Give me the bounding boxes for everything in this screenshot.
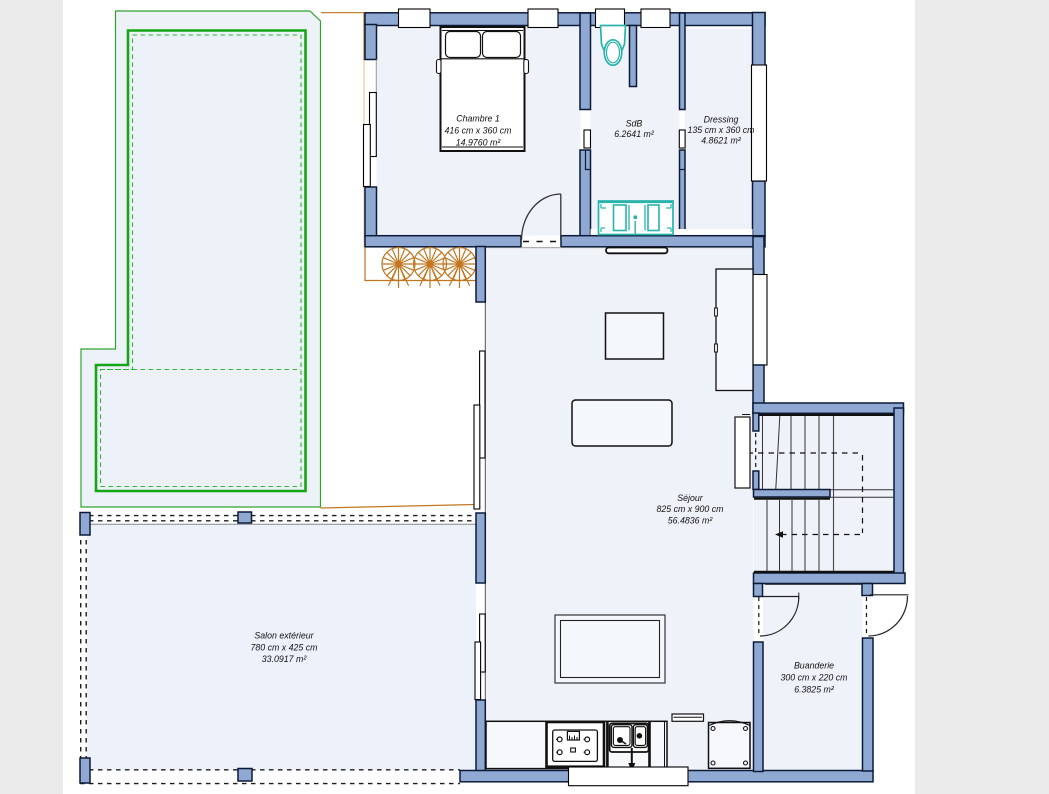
svg-text:825 cm x 900 cm: 825 cm x 900 cm (657, 504, 724, 514)
svg-text:33.0917 m²: 33.0917 m² (262, 654, 308, 664)
svg-text:Chambre 1: Chambre 1 (456, 113, 500, 123)
svg-text:Séjour: Séjour (677, 493, 703, 503)
svg-text:Buanderie: Buanderie (794, 661, 834, 671)
svg-text:Salon extérieur: Salon extérieur (254, 631, 314, 641)
svg-text:135 cm x 360 cm: 135 cm x 360 cm (688, 125, 755, 135)
svg-text:56.4836 m²: 56.4836 m² (668, 516, 714, 526)
svg-text:14.9760 m²: 14.9760 m² (456, 138, 502, 148)
svg-text:6.2641 m²: 6.2641 m² (614, 129, 655, 139)
svg-text:4.8621 m²: 4.8621 m² (701, 136, 742, 146)
svg-text:SdB: SdB (626, 119, 643, 129)
svg-text:780 cm x 425 cm: 780 cm x 425 cm (251, 643, 318, 653)
svg-text:300 cm x 220 cm: 300 cm x 220 cm (781, 673, 848, 683)
svg-text:Dressing: Dressing (704, 115, 739, 125)
svg-text:416 cm x 360 cm: 416 cm x 360 cm (445, 125, 512, 135)
svg-text:6.3825 m²: 6.3825 m² (794, 685, 835, 695)
